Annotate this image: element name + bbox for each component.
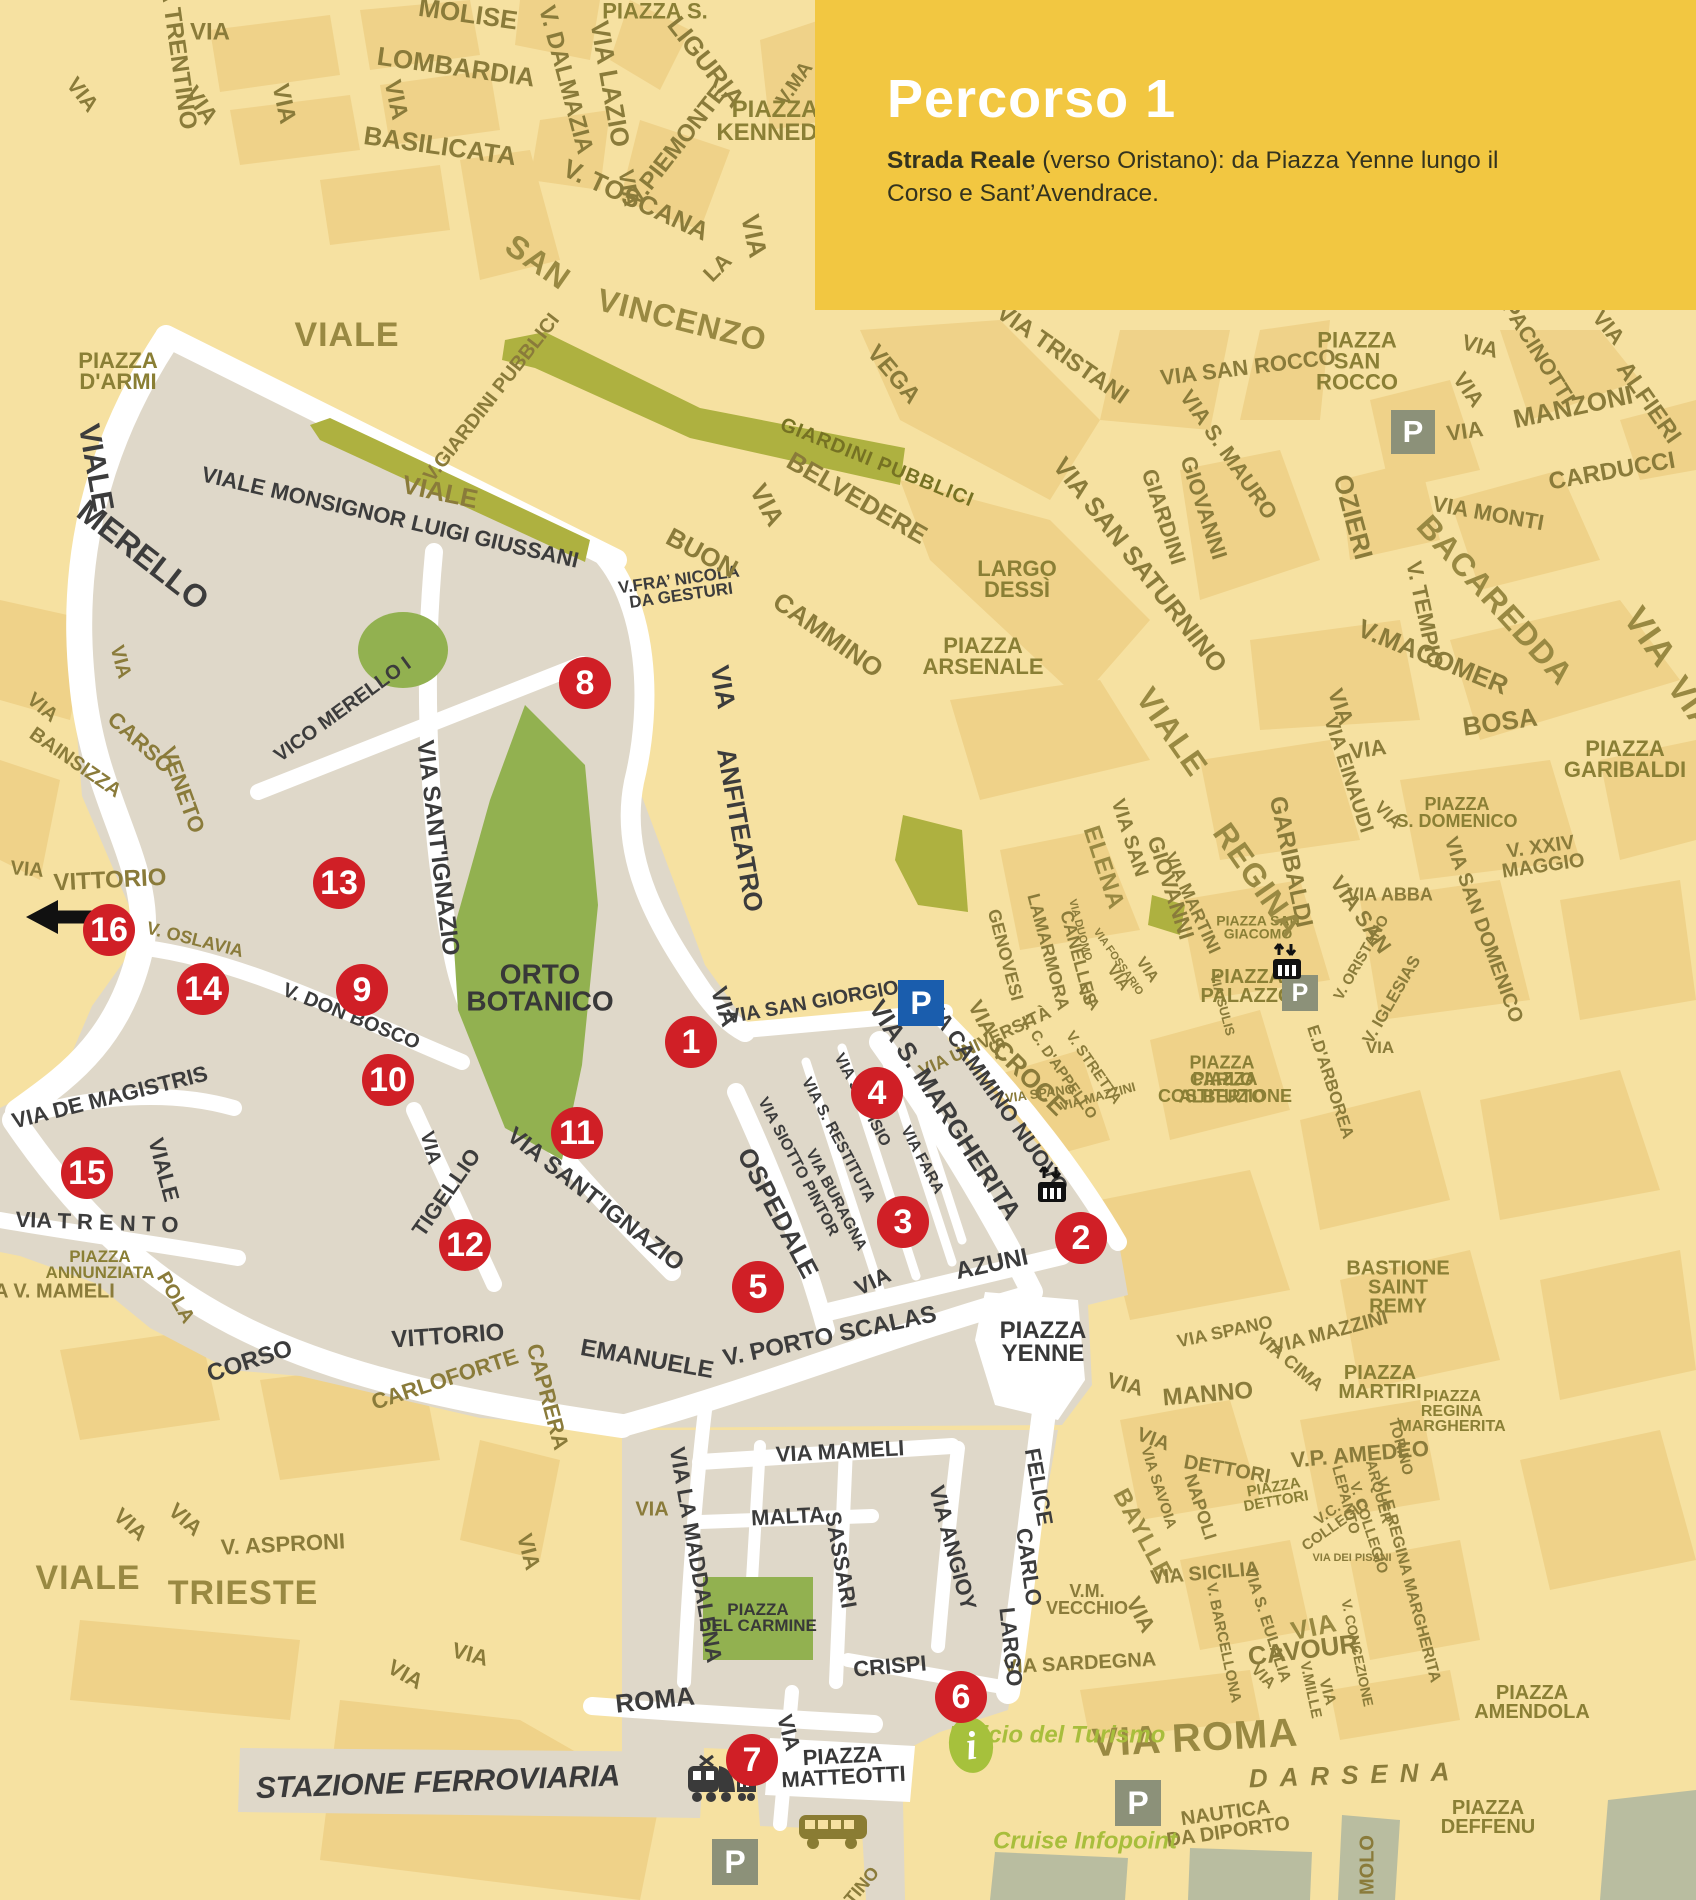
route-description-line1: (verso Oristano): da Piazza Yenne lungo … — [1035, 147, 1498, 174]
giardini-pubblici-park — [502, 332, 905, 485]
poi-marker-11: 11 — [551, 1107, 603, 1159]
poi-marker-8: 8 — [559, 657, 611, 709]
poi-marker-6: 6 — [935, 1671, 987, 1723]
route-header-panel: Percorso 1 Strada Reale (verso Oristano)… — [815, 0, 1696, 310]
parking-icon-blue: P — [898, 980, 944, 1026]
map-label-piazza-d-armi: PIAZZA D'ARMI — [78, 351, 157, 393]
map-label-piazza-san-rocco: PIAZZA SAN ROCCO — [1316, 331, 1398, 394]
map-label-via: VIA — [190, 22, 230, 45]
bus-icon — [797, 1810, 869, 1857]
map-label-v-m-vecchio: V.M. VECCHIO — [1046, 1583, 1128, 1617]
map-label-bastione-saint-remy: BASTIONE SAINT REMY — [1346, 1260, 1449, 1317]
map-label-via-v-mameli: VIA V. MAMELI — [0, 1283, 115, 1302]
parking-icon: P — [712, 1839, 758, 1885]
map-label-piazza-yenne: PIAZZA YENNE — [1000, 1320, 1087, 1366]
route-title: Percorso 1 — [887, 68, 1499, 130]
map-label-piazza-carlo-alberto: PIAZZA CARLO ALBERTO — [1179, 1054, 1266, 1105]
map-label-via: VIA — [1366, 1040, 1394, 1056]
map-label-vittorio: VITTORIO — [53, 867, 167, 896]
map-label-via: VIA — [635, 1501, 668, 1520]
map-label-via: VIA — [10, 859, 45, 881]
parking-icon: P — [1391, 410, 1435, 454]
map-label-via: VIA — [737, 212, 770, 260]
map-label-roma: ROMA — [614, 1684, 696, 1717]
route-description-bold: Strada Reale — [887, 147, 1035, 174]
poi-marker-4: 4 — [851, 1067, 903, 1119]
poi-marker-5: 5 — [732, 1261, 784, 1313]
poi-marker-14: 14 — [177, 963, 229, 1015]
map-label-via-dei-pisani: VIA DEI PISANI — [1312, 1553, 1391, 1563]
poi-marker-9: 9 — [336, 964, 388, 1016]
route-description-line2: Corso e Sant’Avendrace. — [887, 180, 1159, 207]
map-label-piazza-arsenale: PIAZZA ARSENALE — [922, 636, 1043, 678]
map-label-viale: VIALE — [35, 1562, 140, 1594]
map-label-piazza-deffenu: PIAZZA DEFFENU — [1441, 1799, 1535, 1837]
map-label-cruise-infopoint: Cruise Infopoint — [993, 1831, 1177, 1854]
map-label-via: VIA — [707, 664, 739, 711]
map-label-malta: MALTA — [751, 1505, 826, 1530]
poi-marker-3: 3 — [877, 1196, 929, 1248]
map-label-piazza-del-carmine: PIAZZA DEL CARMINE — [699, 1602, 817, 1634]
map-label-largo-dess: LARGO DESSÌ — [977, 559, 1056, 601]
poi-marker-15: 15 — [61, 1147, 113, 1199]
map-label-piazza-matteotti: PIAZZA MATTEOTTI — [780, 1743, 906, 1791]
poi-marker-12: 12 — [439, 1219, 491, 1271]
map-label-darsena: DARSENA — [1248, 1759, 1461, 1791]
poi-marker-2: 2 — [1055, 1212, 1107, 1264]
escalator-icon — [1271, 941, 1309, 986]
map-label-piazza-garibaldi: PIAZZA GARIBALDI — [1564, 739, 1686, 781]
map-label-piazza-s: PIAZZA S. — [602, 2, 708, 23]
map-label-piazza-regina-margherita: PIAZZA REGINA MARGHERITA — [1398, 1389, 1505, 1435]
poi-marker-10: 10 — [362, 1054, 414, 1106]
map-label-via: VIA — [1445, 419, 1484, 445]
poi-marker-1: 1 — [665, 1016, 717, 1068]
poi-marker-13: 13 — [313, 857, 365, 909]
map-label-piazza-annunziata: PIAZZA ANNUNZIATA — [46, 1249, 155, 1281]
route-description: Strada Reale (verso Oristano): da Piazza… — [887, 144, 1499, 210]
map-label-via-t-r-e-n-t-o: VIA T R E N T O — [15, 1210, 179, 1237]
parking-icon: P — [1115, 1780, 1161, 1826]
escalator-icon — [1036, 1164, 1074, 1209]
map-label-molo: MOLO — [1359, 1835, 1378, 1895]
map-label-via: VIA — [615, 168, 642, 208]
porcell-green — [895, 815, 968, 912]
map-label-via-abba: VIA ABBA — [1347, 886, 1433, 903]
map-label-piazza-s-domenico: PIAZZA S. DOMENICO — [1396, 796, 1517, 830]
city-map[interactable]: VIAMOLISEVIA TRENTINOVIAVIAVIAVIALOMBARD… — [0, 0, 1696, 1900]
poi-marker-16: 16 — [83, 904, 135, 956]
map-label-piazza-amendola: PIAZZA AMENDOLA — [1474, 1684, 1590, 1722]
poi-marker-7: 7 — [726, 1734, 778, 1786]
map-label-trieste: TRIESTE — [168, 1577, 319, 1609]
map-label-viale: VIALE — [294, 319, 399, 351]
map-label-orto-botanico: ORTO BOTANICO — [466, 961, 613, 1014]
